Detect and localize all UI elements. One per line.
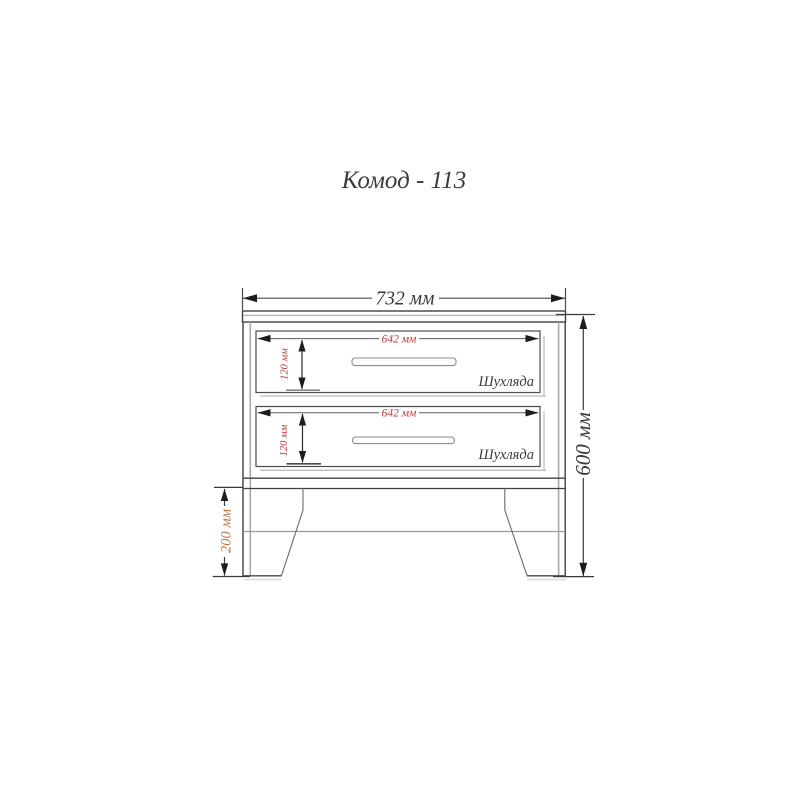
svg-text:600 мм: 600 мм xyxy=(571,412,595,476)
svg-text:Комод - 113: Комод - 113 xyxy=(341,167,466,194)
svg-text:120 мм: 120 мм xyxy=(280,348,291,380)
svg-text:120 мм: 120 мм xyxy=(279,424,290,456)
svg-text:Шухляда: Шухляда xyxy=(478,447,534,463)
svg-text:642 мм: 642 мм xyxy=(382,408,417,420)
svg-text:732 мм: 732 мм xyxy=(375,289,434,310)
svg-text:200 мм: 200 мм xyxy=(219,509,235,553)
svg-text:642 мм: 642 мм xyxy=(382,333,417,345)
svg-text:Шухляда: Шухляда xyxy=(478,374,534,390)
